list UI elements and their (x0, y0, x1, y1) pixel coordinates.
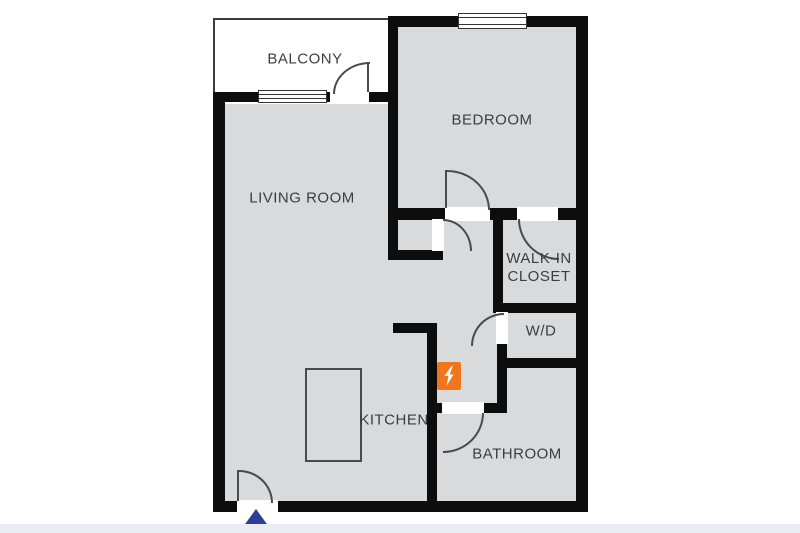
electrical-panel-marker (437, 362, 461, 390)
wall-segment (493, 208, 503, 313)
room-label-kitchen: KITCHEN (359, 412, 428, 429)
floor-plan: BALCONY BEDROOM LIVING ROOM WALK-IN CLOS… (0, 0, 800, 533)
window-balcony (258, 90, 327, 103)
lightning-bolt-icon (441, 365, 457, 387)
room-label-bedroom: BEDROOM (451, 112, 532, 129)
wall-segment (213, 92, 225, 512)
room-label-walk-in-closet-line2: CLOSET (506, 268, 571, 286)
bottom-strip (0, 524, 800, 533)
window-pane (259, 94, 326, 99)
window-bedroom (458, 13, 527, 29)
wall-segment (497, 358, 588, 368)
room-label-walk-in-closet-line1: WALK-IN (506, 250, 571, 268)
window-pane (459, 17, 526, 25)
room-label-walk-in-closet: WALK-IN CLOSET (506, 250, 571, 286)
wall-segment (576, 16, 588, 512)
room-label-washer-dryer: W/D (526, 323, 557, 340)
room-label-bathroom: BATHROOM (472, 446, 562, 463)
room-label-living-room: LIVING ROOM (249, 190, 355, 207)
wall-segment (388, 16, 398, 260)
room-label-balcony: BALCONY (267, 51, 342, 68)
kitchen-island (305, 368, 362, 462)
